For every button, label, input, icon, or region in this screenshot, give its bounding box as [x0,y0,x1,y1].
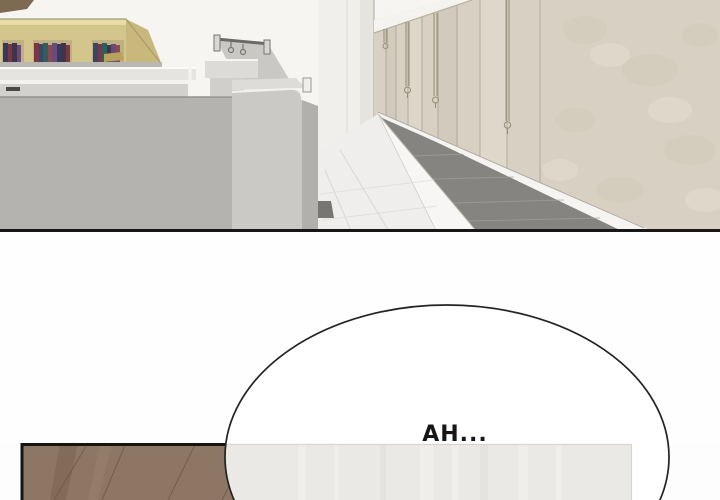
frosted-panel [225,444,632,500]
comic-page: AH... [0,0,720,500]
bottom-panel [0,0,720,500]
speech-bubble-text: AH... [395,424,515,446]
bottom-panel-art [0,0,720,500]
frosted-streaks [298,444,562,500]
